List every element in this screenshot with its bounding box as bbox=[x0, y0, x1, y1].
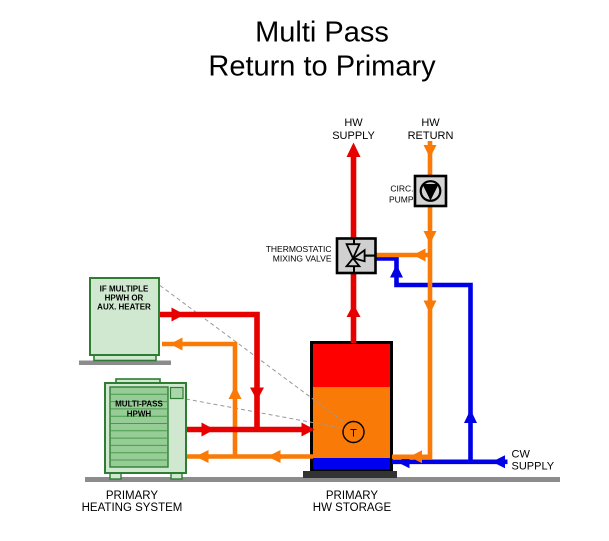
svg-text:HPWH OR: HPWH OR bbox=[105, 294, 144, 303]
svg-text:CW: CW bbox=[512, 449, 531, 461]
svg-text:AUX. HEATER: AUX. HEATER bbox=[97, 303, 151, 312]
svg-text:SUPPLY: SUPPLY bbox=[512, 461, 555, 473]
svg-text:PRIMARY: PRIMARY bbox=[326, 490, 379, 502]
svg-text:HW: HW bbox=[421, 117, 440, 129]
svg-text:IF MULTIPLE: IF MULTIPLE bbox=[100, 285, 149, 294]
svg-text:HEATING SYSTEM: HEATING SYSTEM bbox=[82, 502, 183, 514]
svg-text:PRIMARY: PRIMARY bbox=[106, 490, 159, 502]
svg-text:Return to Primary: Return to Primary bbox=[208, 51, 436, 83]
svg-text:HPWH: HPWH bbox=[127, 410, 152, 419]
svg-text:SUPPLY: SUPPLY bbox=[332, 130, 375, 142]
svg-text:CIRC.: CIRC. bbox=[390, 184, 413, 194]
svg-text:PUMP: PUMP bbox=[389, 195, 414, 205]
svg-text:MIXING VALVE: MIXING VALVE bbox=[273, 254, 332, 264]
svg-text:Multi Pass: Multi Pass bbox=[255, 17, 389, 49]
svg-text:MULTI-PASS: MULTI-PASS bbox=[115, 400, 163, 409]
svg-text:RETURN: RETURN bbox=[408, 130, 454, 142]
svg-text:T: T bbox=[350, 428, 357, 440]
svg-text:HW STORAGE: HW STORAGE bbox=[313, 502, 392, 514]
svg-text:THERMOSTATIC: THERMOSTATIC bbox=[266, 244, 332, 254]
svg-text:HW: HW bbox=[344, 117, 363, 129]
